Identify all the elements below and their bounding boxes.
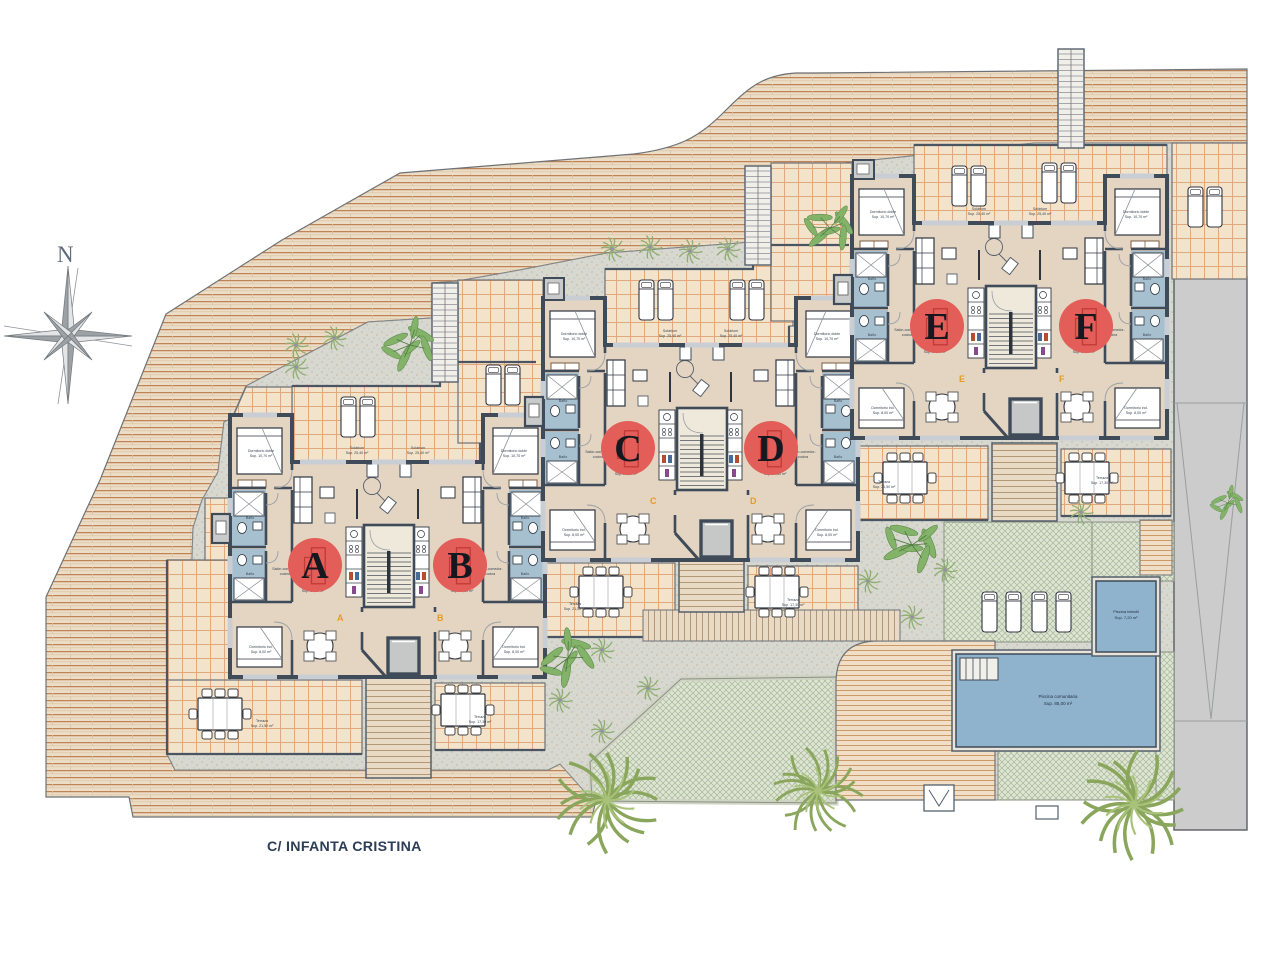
svg-text:Dormitorio ind.: Dormitorio ind. — [249, 645, 272, 649]
svg-text:Solárium: Solárium — [350, 446, 364, 450]
svg-text:Terraza: Terraza — [474, 715, 486, 719]
svg-text:Dormitorio ind.: Dormitorio ind. — [502, 645, 525, 649]
svg-text:cocina: cocina — [485, 572, 495, 576]
svg-text:C/ INFANTA CRISTINA: C/ INFANTA CRISTINA — [267, 839, 422, 855]
svg-text:F: F — [1074, 306, 1097, 348]
svg-text:F: F — [1059, 374, 1065, 384]
svg-text:Dormitorio doble: Dormitorio doble — [501, 449, 527, 453]
svg-text:Sup. 85,00 m²: Sup. 85,00 m² — [1044, 701, 1073, 706]
svg-text:B: B — [447, 545, 472, 587]
svg-text:Sup. 10,70 m²: Sup. 10,70 m² — [250, 454, 273, 458]
svg-text:B: B — [437, 613, 444, 623]
svg-text:A: A — [337, 613, 344, 623]
svg-text:Sup. 25,40 m²: Sup. 25,40 m² — [346, 451, 369, 455]
svg-text:D: D — [757, 428, 784, 470]
svg-text:Sup. 8,00 m²: Sup. 8,00 m² — [251, 650, 272, 654]
svg-text:Sup. 21,50 m²: Sup. 21,50 m² — [251, 724, 274, 728]
svg-text:C: C — [650, 496, 657, 506]
svg-text:D: D — [750, 496, 757, 506]
svg-text:Terraza: Terraza — [256, 719, 268, 723]
svg-text:A: A — [301, 545, 329, 587]
svg-text:Baño: Baño — [521, 572, 529, 576]
svg-text:Piscina infantil: Piscina infantil — [1113, 609, 1139, 614]
svg-text:Dormitorio doble: Dormitorio doble — [248, 449, 274, 453]
svg-text:C: C — [614, 428, 641, 470]
svg-text:Sup. 17,30 m²: Sup. 17,30 m² — [469, 720, 492, 724]
svg-text:Piscina comunitaria: Piscina comunitaria — [1038, 694, 1078, 699]
svg-text:Baño: Baño — [246, 516, 254, 520]
svg-text:E: E — [924, 306, 949, 348]
svg-text:Baño: Baño — [521, 516, 529, 520]
svg-text:Sup. 10,70 m²: Sup. 10,70 m² — [503, 454, 526, 458]
svg-text:Sup. 25,40 m²: Sup. 25,40 m² — [407, 451, 430, 455]
svg-text:Sup. 7,20 m²: Sup. 7,20 m² — [1115, 615, 1139, 620]
svg-text:N: N — [57, 242, 74, 267]
svg-text:Sup. 8,00 m²: Sup. 8,00 m² — [504, 650, 525, 654]
svg-text:E: E — [959, 374, 965, 384]
svg-text:Baño: Baño — [246, 572, 254, 576]
svg-text:Solárium: Solárium — [411, 446, 425, 450]
svg-text:cocina: cocina — [280, 572, 290, 576]
